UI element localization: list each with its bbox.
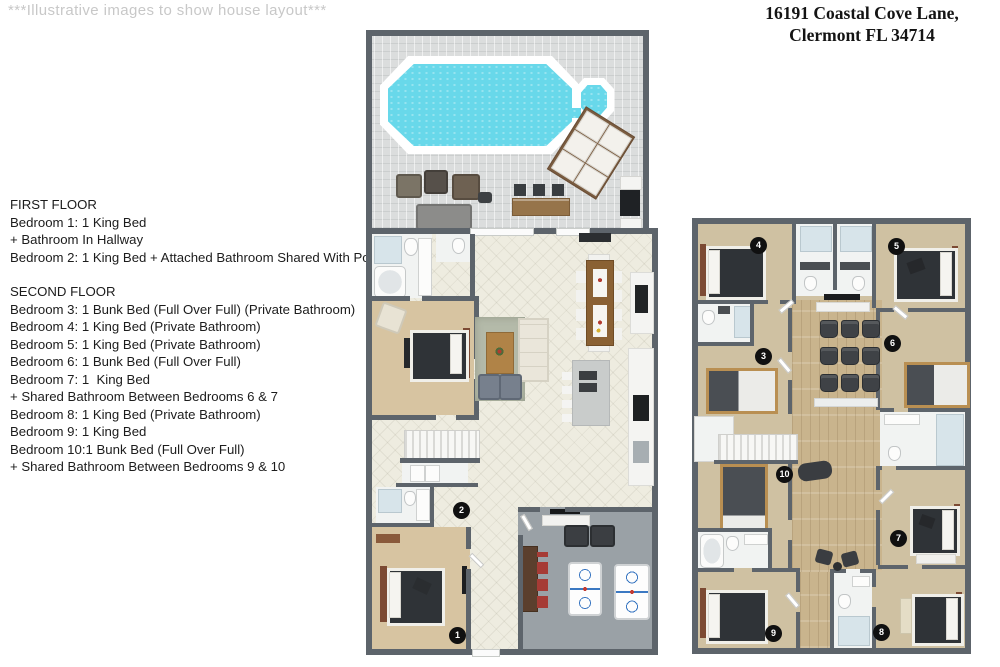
pillows xyxy=(946,598,958,640)
second-floor-plan: 4 5 3 10 9 6 xyxy=(692,218,971,654)
seat xyxy=(841,347,859,365)
legend-first-floor: FIRST FLOOR Bedroom 1: 1 King Bed + Bath… xyxy=(10,196,380,266)
seat xyxy=(841,374,859,392)
shower xyxy=(374,236,402,264)
vanity xyxy=(800,262,830,270)
legend-line: Bedroom 8: 1 King Bed (Private Bathroom) xyxy=(10,406,355,424)
toilet xyxy=(852,276,865,291)
wall xyxy=(692,528,772,532)
dresser xyxy=(376,534,400,543)
dining-table xyxy=(586,260,614,346)
seat xyxy=(820,320,838,338)
bench xyxy=(916,554,956,564)
wall xyxy=(880,408,894,412)
sofa xyxy=(518,318,549,382)
legend-line: Bedroom 3: 1 Bunk Bed (Full Over Full) (… xyxy=(10,301,355,319)
wall xyxy=(788,308,792,352)
media-seats-row xyxy=(820,347,880,365)
badge-bedroom-2: 2 xyxy=(453,502,470,519)
shower xyxy=(378,489,402,513)
patio-armchair xyxy=(396,174,422,198)
table-runner xyxy=(593,269,607,297)
toilet xyxy=(726,536,739,551)
wall xyxy=(876,510,880,565)
armchair xyxy=(564,525,589,547)
media-seats-row xyxy=(820,320,880,338)
wall xyxy=(896,466,965,470)
wall xyxy=(830,569,834,648)
pillows xyxy=(450,334,462,374)
patio-sofa xyxy=(416,204,472,230)
wall xyxy=(692,342,754,346)
wall xyxy=(750,304,754,346)
grill-counter xyxy=(620,176,642,190)
wall xyxy=(878,565,908,569)
wall xyxy=(872,569,876,587)
wall xyxy=(860,569,872,573)
media-console xyxy=(579,233,611,242)
first-floor-interior: 2 1 xyxy=(366,228,658,655)
vanity xyxy=(718,306,730,314)
bathroom-bedroom-3 xyxy=(698,304,752,342)
bathtub xyxy=(374,266,406,298)
sink xyxy=(579,383,597,392)
badge-bedroom-4: 4 xyxy=(750,237,767,254)
wall xyxy=(752,568,800,572)
wall xyxy=(366,30,372,228)
outdoor-dining-table xyxy=(512,198,570,216)
dryer xyxy=(425,465,440,482)
flowers xyxy=(495,347,504,356)
legend-second-floor: SECOND FLOOR Bedroom 3: 1 Bunk Bed (Full… xyxy=(10,283,355,476)
toilet xyxy=(702,310,715,325)
wall xyxy=(792,218,796,300)
wall xyxy=(518,507,540,512)
wall xyxy=(833,224,837,290)
armchair xyxy=(499,374,522,400)
address-line-2: Clermont FL 34714 xyxy=(742,24,982,46)
wall xyxy=(456,415,479,420)
pantry xyxy=(630,272,654,334)
first-floor-plan: 2 1 xyxy=(366,30,658,655)
badge-bedroom-10: 10 xyxy=(776,466,793,483)
wall xyxy=(518,535,523,649)
pool xyxy=(388,64,572,146)
pillows xyxy=(389,572,401,618)
badge-bedroom-5: 5 xyxy=(888,238,905,255)
bench xyxy=(900,598,912,634)
pool-deck xyxy=(366,30,649,228)
headboard xyxy=(380,566,387,622)
vanity xyxy=(416,489,430,521)
patio-armchair xyxy=(452,174,480,200)
pillows xyxy=(708,250,720,294)
property-address: 16191 Coastal Cove Lane, Clermont FL 347… xyxy=(742,2,982,46)
badge-bedroom-1: 1 xyxy=(449,627,466,644)
wall xyxy=(466,569,471,649)
air-hockey-table xyxy=(568,562,602,616)
legend-line: Bedroom 1: 1 King Bed xyxy=(10,214,380,232)
hall-bathroom xyxy=(372,234,432,298)
hall-side-table xyxy=(833,562,842,571)
wall xyxy=(366,30,649,36)
vanity xyxy=(852,576,870,587)
vanity xyxy=(840,262,870,270)
kitchen-counter xyxy=(628,348,654,486)
shower xyxy=(840,226,872,252)
wall xyxy=(796,572,800,592)
armchair xyxy=(590,525,615,547)
patio-side-table xyxy=(478,192,492,203)
bench xyxy=(404,338,410,368)
wall xyxy=(692,648,971,654)
air-hockey-table xyxy=(614,564,650,620)
kitchen-island xyxy=(572,360,610,426)
wall xyxy=(692,568,734,572)
dining-chairs-left xyxy=(576,264,586,340)
wall xyxy=(908,308,965,312)
badge-bedroom-8: 8 xyxy=(873,624,890,641)
grill xyxy=(620,190,640,216)
legend-line: + Bathroom In Hallway xyxy=(10,231,380,249)
badge-bedroom-3: 3 xyxy=(755,348,772,365)
wall xyxy=(922,565,965,569)
stairs xyxy=(404,430,480,460)
toilet xyxy=(804,276,817,291)
washer xyxy=(410,465,425,482)
seat xyxy=(820,374,838,392)
legend-title: FIRST FLOOR xyxy=(10,196,380,214)
wall xyxy=(788,380,792,414)
fridge xyxy=(635,285,648,313)
wall xyxy=(430,487,434,527)
legend-line: Bedroom 2: 1 King Bed + Attached Bathroo… xyxy=(10,249,380,267)
toilet xyxy=(404,491,416,506)
laundry xyxy=(402,463,468,483)
legend-line: Bedroom 6: 1 Bunk Bed (Full Over Full) xyxy=(10,353,355,371)
wall xyxy=(768,532,772,568)
game-room xyxy=(518,507,652,649)
toilet xyxy=(888,446,901,461)
water-closet xyxy=(436,234,470,262)
front-door xyxy=(472,649,500,657)
seat xyxy=(862,374,880,392)
shower xyxy=(800,226,832,252)
sliding-door xyxy=(470,228,534,236)
wall xyxy=(965,218,971,654)
seat xyxy=(862,347,880,365)
seat xyxy=(862,320,880,338)
wall xyxy=(643,30,649,228)
door xyxy=(777,357,792,373)
legend-line: + Shared Bathroom Between Bedrooms 9 & 1… xyxy=(10,458,355,476)
pool-surround xyxy=(380,56,580,154)
wall xyxy=(565,507,652,512)
bunk-bed-3 xyxy=(706,368,778,414)
legend-line: + Shared Bathroom Between Bedrooms 6 & 7 xyxy=(10,388,355,406)
wall xyxy=(466,527,471,549)
bunk-bed-6 xyxy=(904,362,970,408)
badge-bedroom-6: 6 xyxy=(884,335,901,352)
coffee-table xyxy=(486,332,514,374)
hall-bathroom-2 xyxy=(376,487,430,523)
bathroom-bedroom-8 xyxy=(834,569,872,648)
badge-bedroom-7: 7 xyxy=(890,530,907,547)
door xyxy=(785,592,800,608)
island-stools xyxy=(562,366,572,422)
wall xyxy=(876,470,880,490)
accent-chair xyxy=(374,301,407,334)
legend-line: Bedroom 7: 1 King Bed xyxy=(10,371,355,389)
bathroom-shared-6-7 xyxy=(880,412,965,466)
seat xyxy=(820,347,838,365)
bar-table xyxy=(522,546,538,612)
bathtub xyxy=(700,534,724,568)
media-seats-row xyxy=(820,374,880,392)
toilet xyxy=(838,594,851,609)
wall xyxy=(366,415,436,420)
hallway xyxy=(792,300,882,572)
legend-line: Bedroom 9: 1 King Bed xyxy=(10,423,355,441)
wall xyxy=(470,234,475,296)
wall xyxy=(788,540,792,568)
tv-console xyxy=(816,302,870,312)
seat xyxy=(841,320,859,338)
vanity xyxy=(418,238,432,296)
outdoor-dining-chairs xyxy=(514,184,566,196)
hallway xyxy=(800,572,832,648)
shower xyxy=(936,414,964,466)
sink xyxy=(579,371,597,380)
wall xyxy=(796,612,800,648)
pillows xyxy=(940,252,952,296)
armchair xyxy=(478,374,501,400)
legend-title: SECOND FLOOR xyxy=(10,283,355,301)
shower xyxy=(838,616,870,646)
vanity xyxy=(884,414,920,425)
badge-bedroom-9: 9 xyxy=(765,625,782,642)
range xyxy=(633,395,649,421)
door xyxy=(892,305,908,320)
legend-line: Bedroom 5: 1 King Bed (Private Bathroom) xyxy=(10,336,355,354)
pillows xyxy=(942,510,954,550)
toilet xyxy=(452,238,465,254)
pillows xyxy=(708,594,720,638)
table-runner xyxy=(593,305,607,337)
stairs xyxy=(718,434,798,462)
legend-line: Bedroom 10:1 Bunk Bed (Full Over Full) xyxy=(10,441,355,459)
media-ledge xyxy=(814,398,878,407)
tv xyxy=(824,294,860,300)
wall xyxy=(908,408,965,412)
bedroom-2 xyxy=(372,301,474,415)
patio-armchair xyxy=(424,170,448,194)
bar-chairs xyxy=(537,552,548,608)
wall xyxy=(366,649,658,655)
door xyxy=(469,553,485,569)
dishwasher xyxy=(633,441,649,463)
bathroom-shared-9-10 xyxy=(698,532,770,568)
legend-line: Bedroom 4: 1 King Bed (Private Bathroom) xyxy=(10,318,355,336)
address-line-1: 16191 Coastal Cove Lane, xyxy=(742,2,982,24)
wall xyxy=(872,218,876,308)
watermark-note: ***Illustrative images to show house lay… xyxy=(8,2,327,19)
toilet xyxy=(404,238,418,256)
vanity xyxy=(744,534,768,545)
